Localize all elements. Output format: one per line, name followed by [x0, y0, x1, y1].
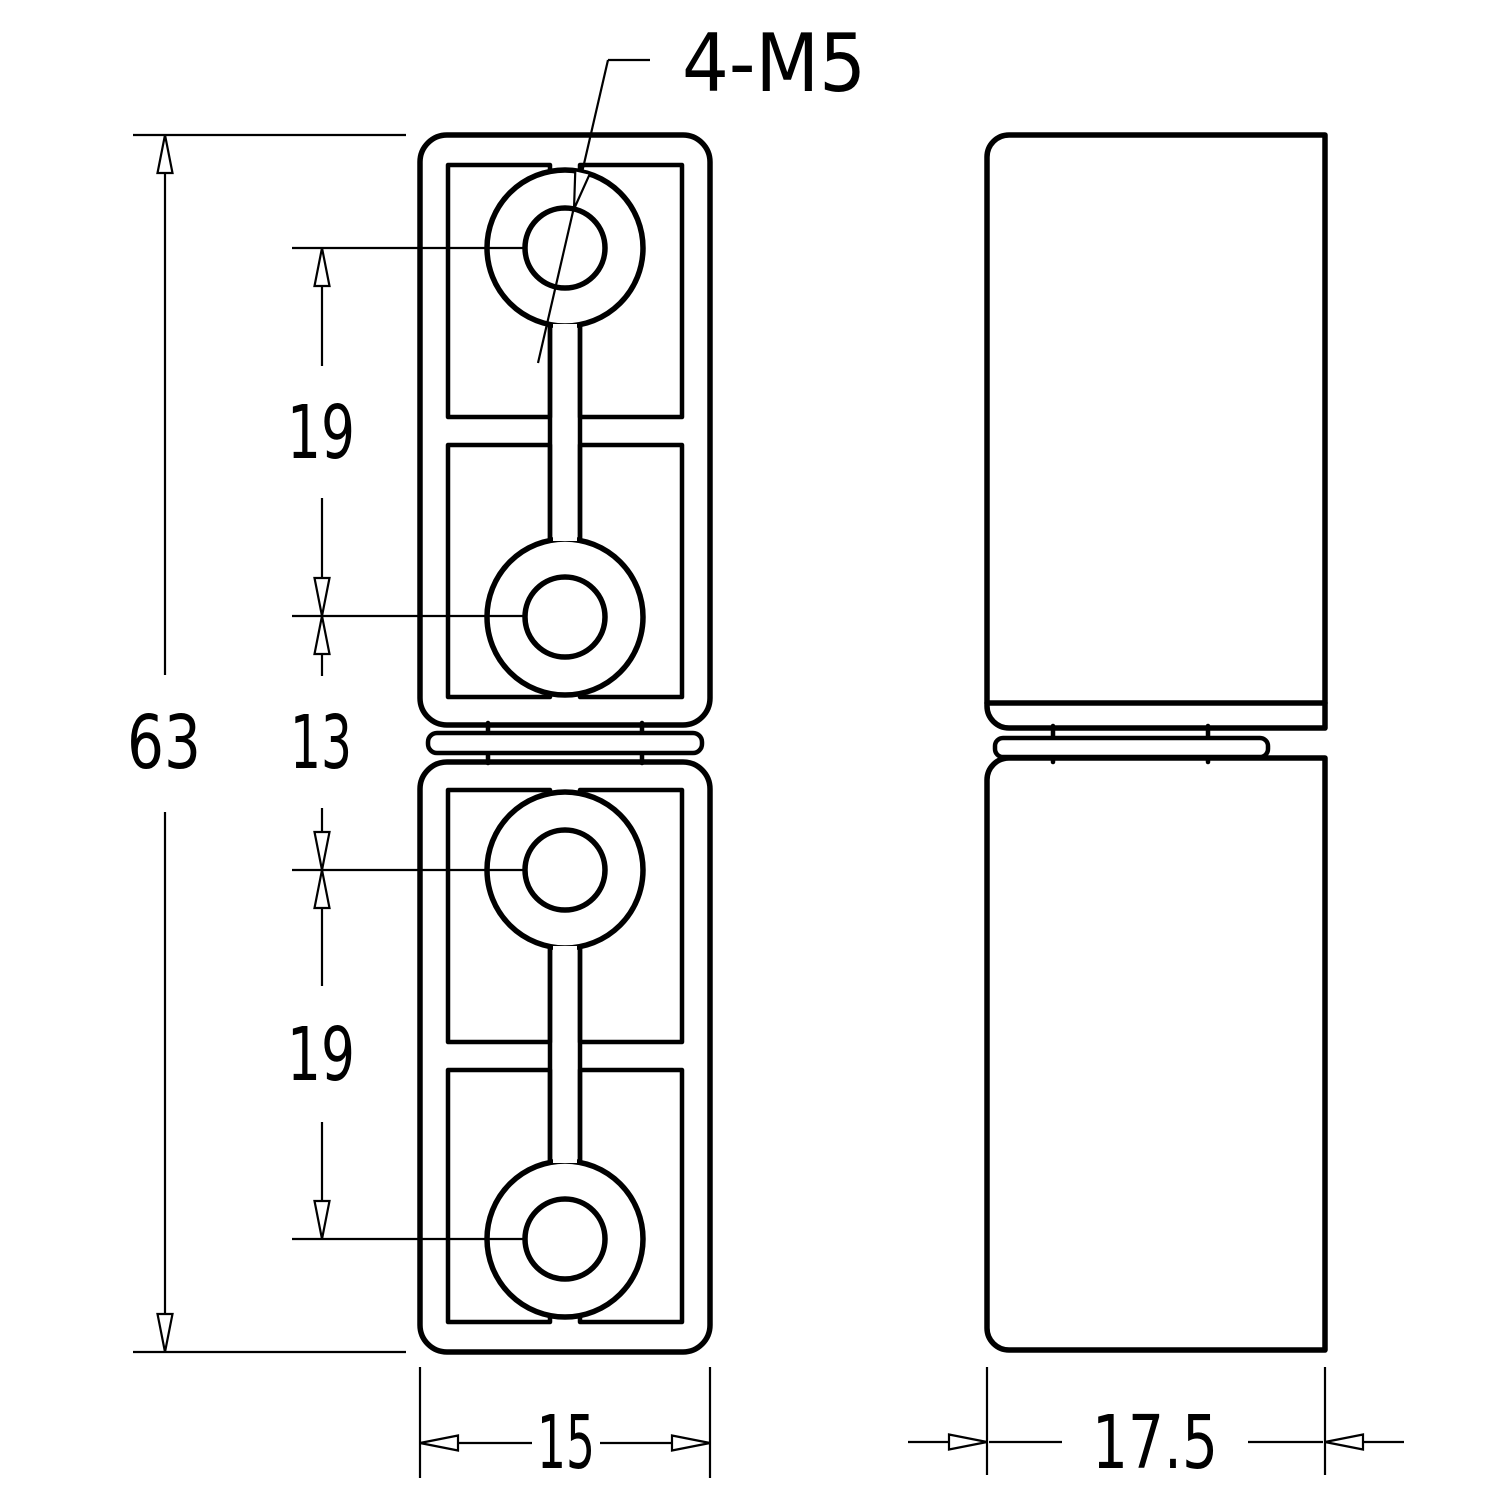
arrowhead — [315, 870, 330, 908]
dim-text-overall-height: 63 — [127, 700, 201, 786]
side-bottom-leaf-outline — [987, 758, 1325, 1350]
pin-band-side — [995, 738, 1268, 757]
bottom-leaf — [420, 762, 710, 1352]
dim-text-front-width: 15 — [537, 1400, 595, 1486]
drawing-canvas: 63 19 13 19 15 — [0, 0, 1500, 1500]
dim-center-gap: 13 — [290, 616, 352, 870]
arrowhead — [949, 1435, 987, 1450]
arrowhead — [315, 578, 330, 616]
arrowhead — [158, 135, 173, 173]
dim-text-upper-pitch: 19 — [287, 390, 355, 476]
boss-channel-mask-top — [553, 324, 577, 541]
side-view — [987, 135, 1325, 1350]
thread-callout-text: 4-M5 — [682, 17, 866, 110]
side-top-leaf-outline — [987, 135, 1325, 728]
arrowhead — [158, 1314, 173, 1352]
boss-channel-mask-bottom — [553, 946, 577, 1163]
arrowhead — [315, 832, 330, 870]
arrowhead — [315, 1201, 330, 1239]
hinge-technical-drawing: 63 19 13 19 15 — [0, 0, 1500, 1500]
dim-overall-height: 63 — [127, 135, 406, 1352]
dim-text-lower-pitch: 19 — [287, 1012, 355, 1098]
arrowhead — [315, 616, 330, 654]
pin-band-front — [428, 733, 702, 753]
front-view — [420, 135, 710, 1352]
arrowhead — [1325, 1435, 1363, 1450]
dim-text-side-width: 17.5 — [1092, 1400, 1218, 1486]
dim-upper-hole-pitch: 19 — [287, 248, 355, 616]
dim-text-center-gap: 13 — [290, 700, 352, 786]
dim-front-width: 15 — [420, 1367, 710, 1486]
dim-lower-hole-pitch: 19 — [287, 870, 355, 1239]
arrowhead — [315, 248, 330, 286]
hinge-knuckle-front — [428, 723, 702, 763]
top-leaf — [420, 135, 710, 725]
arrowhead — [420, 1436, 458, 1451]
dim-side-width: 17.5 — [908, 1367, 1404, 1486]
arrowhead — [672, 1436, 710, 1451]
